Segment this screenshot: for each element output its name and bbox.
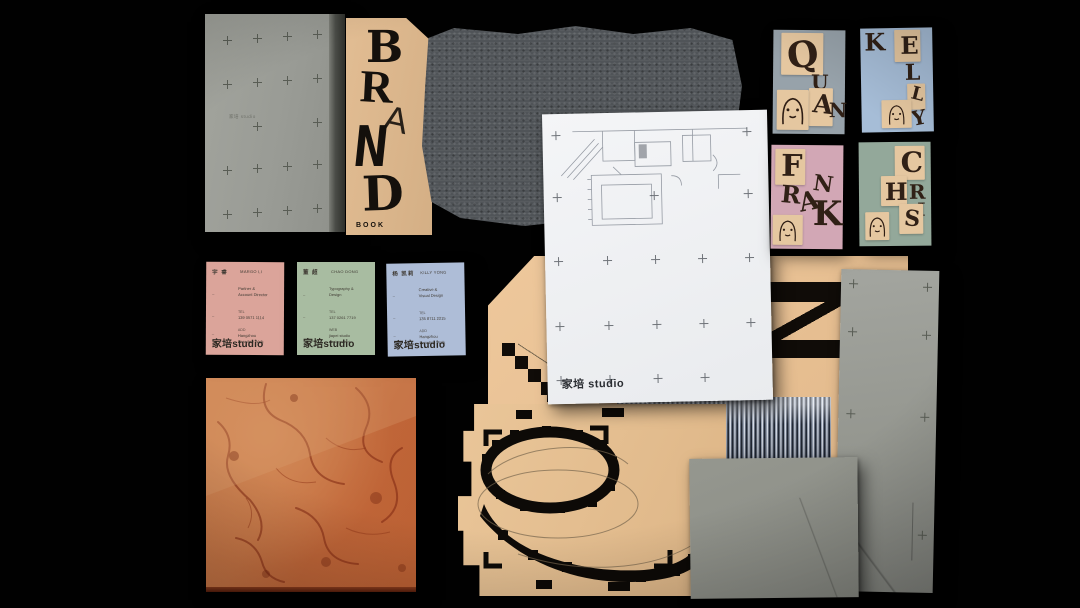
registration-mark-icon <box>652 320 661 329</box>
card-tel: TEL137 0261 7719 <box>329 310 356 321</box>
registration-mark-icon <box>223 210 232 219</box>
registration-mark-icon <box>283 32 292 41</box>
card-name-cn: 杨 凯莉 <box>392 269 414 277</box>
panel-scratch <box>911 503 913 561</box>
gray-board-panel-bottom <box>689 457 858 599</box>
tile-edge <box>206 587 416 592</box>
registration-mark-icon <box>313 204 322 213</box>
card-name-en: KILLY YONG <box>420 270 446 275</box>
letterform: K <box>864 30 885 54</box>
registration-mark-icon <box>848 327 857 336</box>
registration-mark-icon <box>742 127 751 136</box>
registration-mark-icon <box>253 34 262 43</box>
registration-mark-icon <box>698 254 707 263</box>
registration-mark-icon <box>603 256 612 265</box>
card-tel: TEL135 8711 2215 <box>419 311 446 323</box>
registration-mark-icon <box>223 166 232 175</box>
registration-mark-icon <box>283 162 292 171</box>
face-icon <box>865 212 889 240</box>
registration-mark-icon <box>651 255 660 264</box>
registration-mark-icon <box>846 409 855 418</box>
letterform: H <box>885 180 908 204</box>
studio-logo: 家培studio <box>212 335 264 350</box>
registration-mark-icon <box>699 319 708 328</box>
business-card-green: 董 超 CHAO DONG – – Typography &Design TEL… <box>297 262 375 355</box>
letterform: Q <box>785 35 821 75</box>
name-card-quan: Q U A N <box>773 30 846 135</box>
registration-mark-icon <box>918 531 927 540</box>
name-card-frank: F R A N K <box>771 145 844 250</box>
card-name-cn: 董 超 <box>303 268 319 276</box>
letterform: F <box>781 152 803 182</box>
registration-mark-icon <box>849 279 858 288</box>
brand-book-card: B R A N D BOOK <box>346 18 432 235</box>
studio-logo: 家培studio <box>303 335 355 350</box>
registration-mark-icon <box>650 191 659 200</box>
card-role: Partner &Account Director <box>238 286 268 298</box>
card-marker: – <box>303 314 305 319</box>
face-icon <box>773 215 803 245</box>
registration-mark-icon <box>223 36 232 45</box>
registration-mark-icon <box>700 373 709 382</box>
business-card-blue: 杨 凯莉 KILLY YONG – – – Creative &Visual D… <box>386 262 466 356</box>
floor-plan-sketch <box>542 114 769 239</box>
registration-mark-icon <box>313 118 322 127</box>
registration-mark-icon <box>253 208 262 217</box>
card-tel: TEL139 0571 1114 <box>238 310 264 322</box>
terracotta-marble-tile <box>206 378 416 592</box>
gray-book-cover: 家培 studio <box>205 14 345 232</box>
marble-veins <box>206 378 416 592</box>
letter-tile <box>773 215 803 245</box>
registration-mark-icon <box>313 160 322 169</box>
panel-crease <box>788 497 849 598</box>
letterform: N <box>812 172 835 197</box>
card-role: Creative &Visual Design <box>419 287 444 299</box>
registration-mark-icon <box>653 374 662 383</box>
registration-mark-icon <box>554 257 563 266</box>
face-icon <box>777 90 809 130</box>
name-card-kelly: K E L L Y <box>860 27 934 132</box>
registration-mark-icon <box>923 283 932 292</box>
letterform: N <box>829 100 847 120</box>
book-page-edge <box>329 14 345 232</box>
letterform: E <box>900 34 919 58</box>
brand-book-caption: BOOK <box>356 222 385 229</box>
floor-plan-sheet: 家培 studio <box>542 110 773 405</box>
letterform: L <box>905 62 921 84</box>
studio-logo: 家培 studio <box>561 375 624 392</box>
registration-mark-icon <box>283 206 292 215</box>
letter-tile <box>865 212 889 240</box>
registration-mark-icon <box>223 80 232 89</box>
registration-mark-icon <box>313 74 322 83</box>
registration-mark-icon <box>553 193 562 202</box>
pixel-s-graphic <box>458 404 726 596</box>
card-marker: – <box>212 314 214 319</box>
card-name-en: MARGO LI <box>240 269 262 274</box>
registration-mark-icon <box>745 253 754 262</box>
letterform: C <box>901 149 924 177</box>
name-card-chris: C H R I S <box>859 142 932 247</box>
registration-mark-icon <box>555 322 564 331</box>
registration-mark-icon <box>253 78 262 87</box>
card-marker: – <box>393 316 395 321</box>
registration-mark-icon <box>604 321 613 330</box>
card-marker: – <box>393 294 395 299</box>
card-name-en: CHAO DONG <box>331 269 358 274</box>
brand-flatlay-photo: 家培 studio B R A N D BOOK <box>0 0 1080 608</box>
studio-logo: 家培studio <box>393 336 445 352</box>
business-card-pink: 宇 睿 MARGO LI – – – Partner &Account Dire… <box>206 262 284 355</box>
letter-tile <box>777 90 809 130</box>
book-cover-text: 家培 studio <box>229 114 256 120</box>
registration-mark-icon <box>920 413 929 422</box>
card-name-cn: 宇 睿 <box>212 268 228 276</box>
face-icon <box>881 100 911 129</box>
registration-mark-icon <box>746 318 755 327</box>
card-role: Typography &Design <box>329 286 354 298</box>
registration-mark-icon <box>922 331 931 340</box>
registration-mark-icon <box>253 164 262 173</box>
letterform: K <box>813 197 843 231</box>
letterform: D <box>361 169 404 218</box>
registration-mark-icon <box>551 131 560 140</box>
letterform: Y <box>910 106 928 128</box>
card-marker: – <box>212 292 214 297</box>
card-marker: – <box>303 292 305 297</box>
registration-mark-icon <box>253 122 262 131</box>
die-cut-cardboard-s <box>458 404 726 596</box>
registration-mark-icon <box>313 30 322 39</box>
registration-mark-icon <box>744 189 753 198</box>
letterform: S <box>903 207 921 230</box>
registration-mark-icon <box>283 76 292 85</box>
letter-tile <box>881 100 911 129</box>
